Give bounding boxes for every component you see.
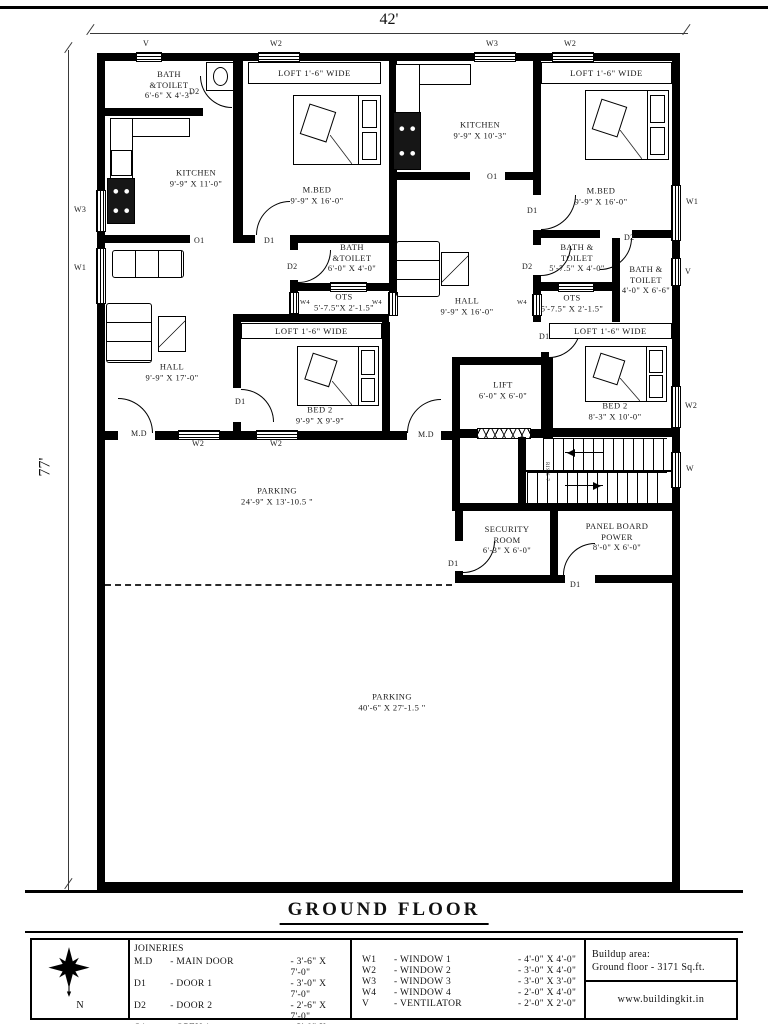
tag: D2 [522,263,532,271]
tag: W [686,465,694,473]
ventilator-marker [671,258,681,286]
lift-door-hatch [477,428,531,439]
room-lift: LIFT 6'-0" X 6'-0" [479,379,527,400]
tag: W3 [74,206,86,214]
joinery-row: M.D- MAIN DOOR- 3'-6" X 7'-0" [134,957,346,979]
tag: W2 [564,40,576,48]
window-marker [474,52,516,62]
tag: D1 [570,581,580,589]
tag: D1 [539,333,549,341]
tag: D2 [287,263,297,271]
sofa-icon [112,250,184,278]
bed-icon [293,95,381,165]
window-row: W3- WINDOW 3- 3'-0" X 3'-0" [362,977,580,988]
stove-icon [107,178,135,224]
legend-divider [350,940,352,1018]
tag: W3 [486,40,498,48]
room-bed2-right: BED 2 8'-3" X 10'-0" [589,400,642,421]
loft-strip: LOFT 1'-6" WIDE [549,323,672,339]
tag: M.D [131,430,147,438]
room-panel-board: PANEL BOARD POWER 8'-0" X 6'-0" [586,521,649,553]
top-dimension-label: 42' [380,11,399,29]
buildup-line2: Ground floor - 3171 Sq.ft. [592,961,705,974]
window-row: W4- WINDOW 4- 2'-0" X 4'-0" [362,988,580,999]
room-security: SECURITY ROOM 6'-3" X 6'-0" [483,524,531,556]
tv-icon [158,316,186,352]
room-ots-left: OTS 5'-7.5"X 2'-1.5" [314,291,374,312]
room-hall-left: HALL 9'-9" X 17'-0" [146,361,199,382]
room-mbed-right: M.BED 9'-9" X 16'-0" [575,185,628,206]
tag: O1 [194,237,204,245]
window-marker [258,52,300,62]
window-marker [552,52,594,62]
stove-icon [393,112,421,170]
room-parking-upper: PARKING 24'-9" X 13'-10.5 " [241,485,313,506]
joineries-title: JOINERIES [134,944,346,955]
legend-block: N JOINERIES M.D- MAIN DOOR- 3'-6" X 7'-0… [30,938,738,1020]
compass-icon [46,946,92,998]
tv-icon [441,252,469,286]
tag: W4 [372,300,382,307]
parking-divider-dashed [105,584,452,586]
window-marker [671,386,681,428]
tag: D1 [448,560,458,568]
room-hall-center: HALL 9'-9" X 16'-0" [441,295,494,316]
window-marker [671,185,681,241]
tag: D2 [189,88,199,96]
room-bed2-left: BED 2 9'-9" X 9'-9" [296,404,344,425]
door-arc [541,195,576,230]
door-arc [256,201,290,235]
loft-strip: LOFT 1'-6" WIDE [541,62,672,84]
bed-icon [585,346,667,402]
room-parking-lower: PARKING 40'-6" X 27'-1.5 " [358,691,425,712]
tag: W4 [300,300,310,307]
buildup-line1: Buildup area: [592,948,705,961]
window-row: V- VENTILATOR- 2'-0" X 2'-0" [362,999,580,1010]
website-link[interactable]: www.buildingkit.in [584,994,738,1005]
tag: W1 [74,264,86,272]
room-ots-right: OTS 5'-7.5" X 2'-1.5" [541,292,604,313]
title-rule-bottom [25,931,743,933]
sink-icon [111,150,132,176]
left-dimension-label: 77' [36,458,54,477]
page-title: GROUND FLOOR [280,899,489,925]
bed-icon [297,346,379,406]
page-top-rule [0,6,768,9]
door-arc [118,398,153,433]
windows-table: W1- WINDOW 1- 4'-0" X 4'-0" W2- WINDOW 2… [362,955,580,1010]
ventilator-marker [136,52,162,62]
tag: W2 [192,440,204,448]
joineries-table: JOINERIES M.D- MAIN DOOR- 3'-6" X 7'-0" … [134,944,346,1024]
joinery-row: D2- DOOR 2- 2'-6" X 7'-0" [134,1001,346,1023]
bed-icon [585,90,669,160]
tag: O1 [487,173,497,181]
tag: V [685,268,691,276]
tag: W2 [685,402,697,410]
room-bath-toilet-left: BATH &TOILET 6'-0" X 4'-0" [328,242,376,274]
tag: V [143,40,149,48]
window-marker [558,282,594,292]
tag: W2 [270,40,282,48]
tag: W4 [517,300,527,307]
room-mbed-left: M.BED 9'-9" X 16'-0" [291,184,344,205]
room-kitchen-left: KITCHEN 9'-9" X 11'-0" [170,167,223,188]
loft-strip: LOFT 1'-6" WIDE [241,323,382,339]
legend-divider [584,940,586,1018]
tag: D1 [235,398,245,406]
door-arc [407,399,441,433]
window-marker [96,248,106,304]
legend-divider [128,940,130,1018]
window-row: W2- WINDOW 2- 3'-0" X 4'-0" [362,966,580,977]
sofa-icon [396,241,440,297]
stair-riser-note: RIS.6-7 [544,462,549,481]
tag: W1 [686,198,698,206]
window-marker [289,292,299,314]
room-kitchen-center: KITCHEN 9'-9" X 10'-3" [454,119,507,140]
room-bath-toilet-mid-right: BATH & TOILET 5'-7.5" X 4'-0" [549,242,604,274]
window-marker [671,452,681,488]
tag: D2 [624,234,634,242]
tag: M.D [418,431,434,439]
compass-north-label: N [32,1000,128,1011]
floor-plan-page: 42' 77' [0,0,768,1024]
door-arc [298,250,331,283]
door-arc [241,389,274,422]
room-bath-toilet-far-right: BATH & TOILET 4'-0" X 6'-6" [622,264,670,296]
toilet-icon [206,62,234,91]
room-bath-toilet-top-left: BATH &TOILET 6'-6" X 4'-3" [145,69,193,101]
loft-strip: LOFT 1'-6" WIDE [248,62,381,84]
buildup-area: Buildup area: Ground floor - 3171 Sq.ft. [592,948,705,974]
joinery-row: D1- DOOR 1- 3'-0" X 7'-0" [134,979,346,1001]
window-row: W1- WINDOW 1- 4'-0" X 4'-0" [362,955,580,966]
window-marker [96,190,106,232]
sofa-icon [106,303,152,363]
title-rule-top [25,890,743,893]
tag: D1 [264,237,274,245]
tag: D1 [527,207,537,215]
tag: W2 [270,440,282,448]
legend-divider [584,980,738,982]
